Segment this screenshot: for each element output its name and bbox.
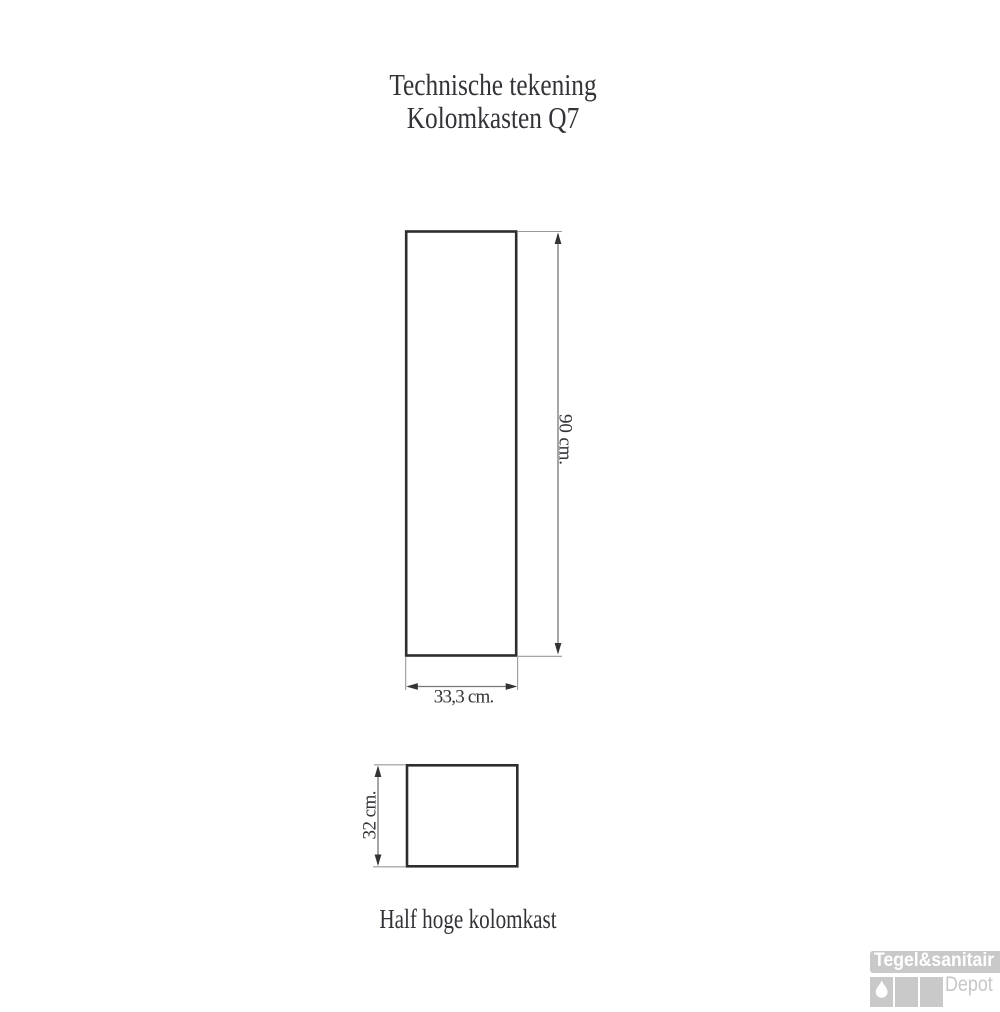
svg-text:33,3 cm.: 33,3 cm. bbox=[434, 686, 495, 707]
svg-text:32 cm.: 32 cm. bbox=[360, 791, 381, 840]
svg-text:90 cm.: 90 cm. bbox=[555, 414, 576, 465]
